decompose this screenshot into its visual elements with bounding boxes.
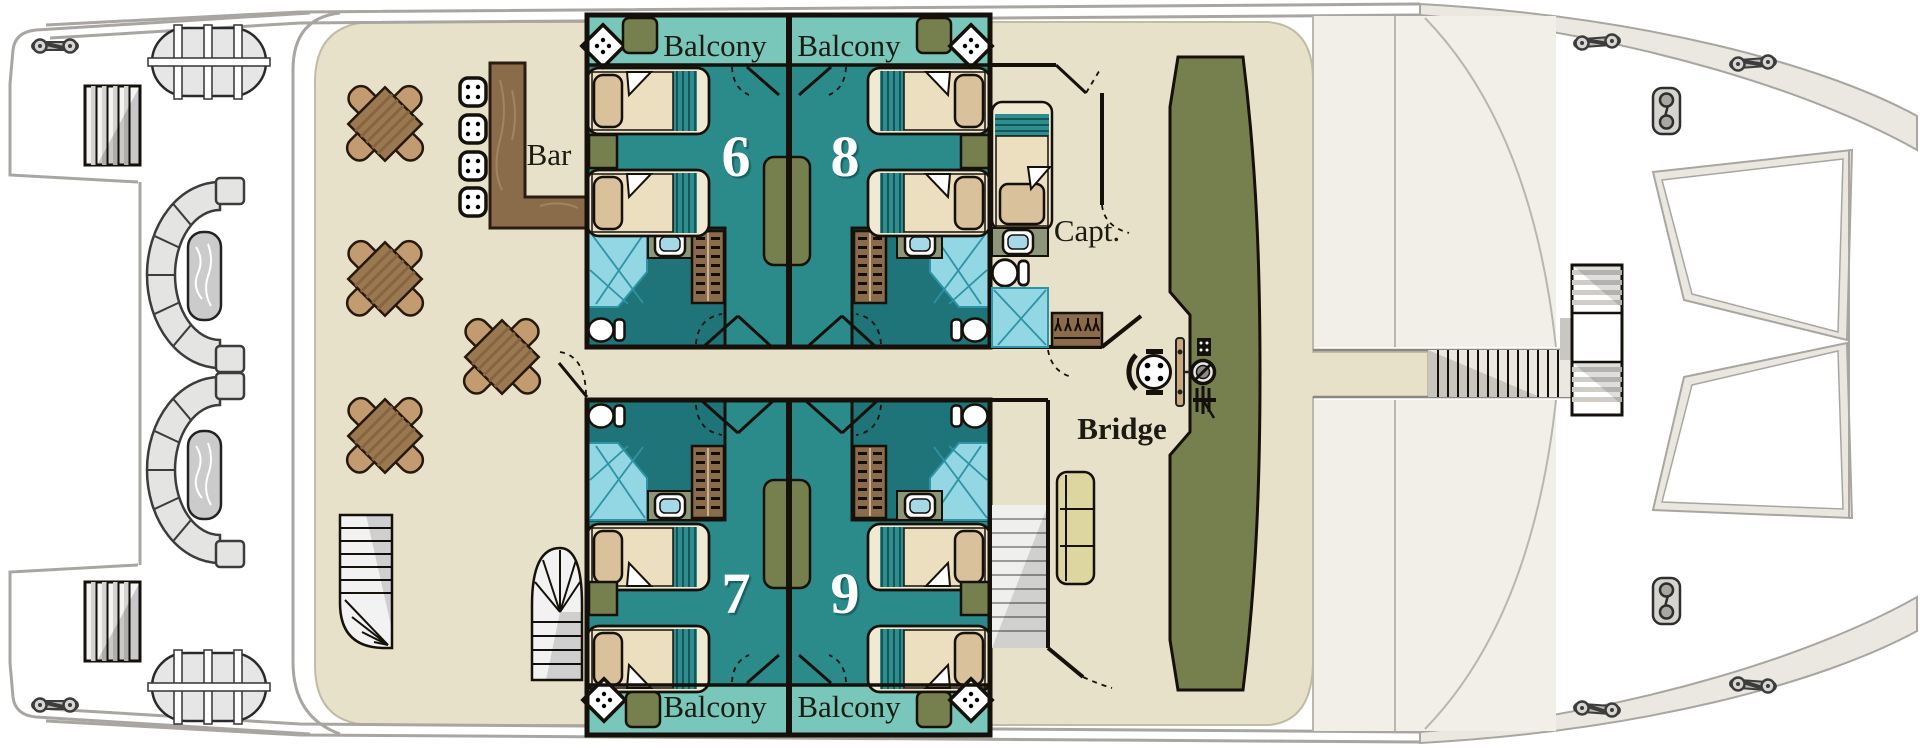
shower bbox=[588, 443, 647, 520]
lounge-table bbox=[188, 431, 221, 519]
nightstand bbox=[961, 135, 989, 168]
balcony-side-table bbox=[917, 18, 951, 53]
cleat-icon bbox=[32, 699, 78, 712]
toilet bbox=[952, 405, 988, 428]
bridge-sofa bbox=[1057, 472, 1094, 584]
cabin-7-bed bbox=[587, 524, 709, 590]
bow-stairs bbox=[1428, 350, 1572, 397]
balcony-side-table bbox=[626, 692, 660, 727]
balcony-label: Balcony bbox=[663, 689, 767, 724]
captain-wardrobe bbox=[1052, 313, 1102, 347]
bar-stool bbox=[460, 115, 486, 143]
dining-table bbox=[343, 394, 428, 477]
captain-label: Capt. bbox=[1054, 213, 1120, 248]
side-lounges bbox=[147, 178, 244, 567]
balcony-side-table bbox=[917, 692, 951, 727]
cabin-6-number: 6 bbox=[722, 124, 751, 189]
bridge-stairs bbox=[992, 505, 1048, 648]
bollard-icon bbox=[1653, 578, 1680, 624]
cabin-block-bottom: Balcony Balcony 7 9 bbox=[583, 400, 1048, 735]
cabin-9-number: 9 bbox=[831, 561, 860, 626]
bollard-icon bbox=[1653, 88, 1680, 134]
wardrobe bbox=[854, 231, 886, 303]
bow-trampoline-top bbox=[1653, 150, 1852, 340]
compass-icon bbox=[1192, 361, 1215, 384]
dining-table bbox=[460, 315, 545, 398]
sink bbox=[1003, 230, 1033, 254]
sink bbox=[655, 494, 685, 518]
balcony-label: Balcony bbox=[797, 689, 901, 724]
toilet bbox=[589, 405, 625, 428]
bar-stool bbox=[460, 78, 486, 106]
nightstand bbox=[589, 135, 617, 168]
shower bbox=[588, 230, 647, 307]
deck-plan: Bar bbox=[0, 0, 1920, 747]
wardrobe bbox=[692, 231, 724, 303]
nightstand bbox=[589, 582, 617, 615]
captain-shower bbox=[992, 288, 1048, 347]
cabin-8-bed bbox=[868, 170, 990, 236]
toilet bbox=[589, 319, 625, 342]
dining-table bbox=[343, 82, 428, 165]
lounge-table bbox=[188, 232, 221, 320]
spiral-stair-b bbox=[532, 548, 582, 680]
nightstand bbox=[961, 582, 989, 615]
dining-table bbox=[343, 237, 428, 320]
spiral-stair-a bbox=[340, 515, 392, 648]
life-raft-icon bbox=[148, 25, 270, 99]
bow-trampoline-bottom bbox=[1653, 343, 1852, 518]
cleat-icon bbox=[32, 40, 78, 53]
toilet bbox=[993, 260, 1029, 286]
cabin-9-bed bbox=[868, 524, 990, 590]
bridge-label: Bridge bbox=[1077, 411, 1167, 446]
bar-stool bbox=[460, 188, 486, 216]
wardrobe bbox=[692, 446, 724, 518]
stern-stairs bbox=[85, 86, 140, 165]
cabin-7-number: 7 bbox=[722, 561, 751, 626]
toilet bbox=[952, 319, 988, 342]
wardrobe bbox=[854, 446, 886, 518]
sink bbox=[905, 494, 935, 518]
balcony-label: Balcony bbox=[797, 28, 901, 63]
bar-label: Bar bbox=[527, 137, 572, 172]
cabin-6-bed bbox=[587, 170, 709, 236]
stern-stairs bbox=[85, 582, 140, 661]
captain-bed bbox=[992, 102, 1052, 230]
cabin-8-number: 8 bbox=[831, 124, 860, 189]
cabin-6-bed bbox=[587, 68, 709, 134]
instrument-panel-icon bbox=[1197, 338, 1211, 356]
balcony-label: Balcony bbox=[663, 28, 767, 63]
cabin-8-bed bbox=[868, 68, 990, 134]
life-raft-icon bbox=[148, 650, 270, 724]
balcony-side-table bbox=[623, 18, 657, 53]
bar-stool bbox=[460, 152, 486, 180]
